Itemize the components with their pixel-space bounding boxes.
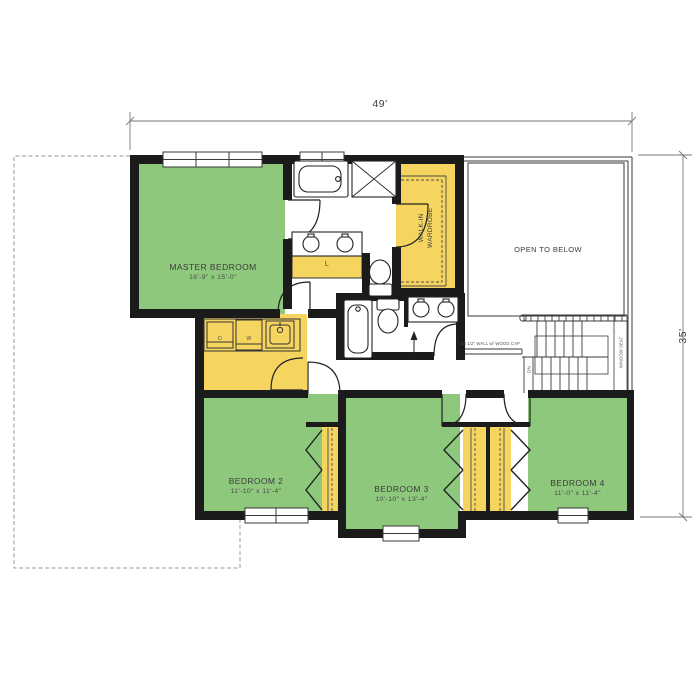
thin-wall-top xyxy=(464,157,632,161)
wall-left-upper xyxy=(130,155,139,318)
dryer-label: D xyxy=(213,336,227,342)
wardrobe-label-line1: WALK-IN xyxy=(418,188,427,268)
wall-hall-band-b xyxy=(340,390,442,398)
dimension-height-label: 35' xyxy=(677,316,689,356)
floor-plan-drawing xyxy=(0,0,700,700)
open-to-below-area xyxy=(468,163,624,316)
bedroom2-closet-floor xyxy=(322,426,340,514)
wall-bed2-closet-top xyxy=(306,422,345,427)
wall-bed4-right xyxy=(627,390,634,520)
toilet-icon xyxy=(377,299,399,333)
hall-bath-fixtures xyxy=(344,297,458,358)
upper-run-treads xyxy=(537,321,582,357)
shower-icon xyxy=(352,161,396,197)
bedroom3-label: BEDROOM 3 xyxy=(344,484,459,494)
bed2-door xyxy=(308,362,340,394)
open-to-below-outline xyxy=(464,157,632,393)
wall-master-bottom xyxy=(130,309,280,318)
bedroom2-floor xyxy=(199,394,339,516)
wall-wardrobe-right xyxy=(455,155,464,296)
wall-closet-divider xyxy=(486,426,490,514)
wall-bed4-bottom xyxy=(458,511,633,520)
open-to-below-label: OPEN TO BELOW xyxy=(478,245,618,254)
half-wall-wood-cap xyxy=(458,349,522,354)
bedroom2-dims: 11'-10" x 11'-4" xyxy=(196,488,316,495)
window-bedroom4 xyxy=(558,508,588,523)
hall-bath-door xyxy=(434,324,458,356)
bed4-bifold xyxy=(511,430,530,510)
bathtub-icon xyxy=(344,300,372,358)
wall-hall-band-c xyxy=(466,390,504,398)
wardrobe-label-line2: WARDROBE xyxy=(427,188,436,268)
wall-hallbath-left xyxy=(336,293,344,360)
floor-plan: 49' 35' MASTER BEDROOM 16'-9" x 15'-0" B… xyxy=(0,0,700,700)
walk-in-wardrobe-label: WALK-IN WARDROBE xyxy=(418,188,436,268)
dimension-width-label: 49' xyxy=(355,98,405,110)
half-wall-cap-label: 44 1/2" WALL w/ WOOD CAP xyxy=(461,341,556,346)
stairs-down-label: DN xyxy=(527,360,532,380)
bedroom4-dims: 11'-0" x 11'-4" xyxy=(520,490,635,497)
bed4-door xyxy=(504,394,530,426)
double-vanity-icon xyxy=(408,297,458,322)
window-bedroom3-bay xyxy=(383,526,419,541)
window-seat-label: WINDOW SEAT xyxy=(619,327,624,379)
linen-label: L xyxy=(320,261,334,268)
laundry-floor xyxy=(199,314,307,394)
stairs xyxy=(458,315,627,393)
window-bedroom2 xyxy=(245,508,308,523)
washer-label: W xyxy=(242,336,256,342)
bedroom3-dims: 10'-10" x 13'-4" xyxy=(344,496,459,503)
wall-hall-band-d xyxy=(528,390,633,398)
thin-wall-right xyxy=(628,157,632,393)
master-bedroom-dims: 16'-9" x 15'-0" xyxy=(133,274,293,281)
window-master-top xyxy=(163,152,262,167)
master-bedroom-label: MASTER BEDROOM xyxy=(133,262,293,272)
toilet-icon xyxy=(369,260,392,296)
bathtub-icon xyxy=(294,161,348,197)
lower-run-treads xyxy=(524,357,587,393)
bedroom2-label: BEDROOM 2 xyxy=(196,476,316,486)
wall-master-bath-a xyxy=(283,155,292,200)
bedroom4-label: BEDROOM 4 xyxy=(520,478,635,488)
bedroom4-floor xyxy=(528,394,630,516)
master-bedroom-floor xyxy=(134,160,285,314)
wall-bath-partition xyxy=(404,297,408,327)
wall-hall-band-a xyxy=(195,390,308,398)
double-vanity-icon xyxy=(292,232,362,256)
